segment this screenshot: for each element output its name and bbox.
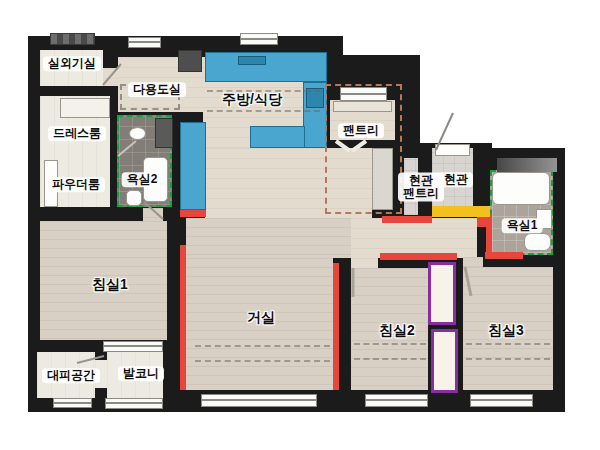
- accent-wall-red: [380, 253, 457, 260]
- floor-guide-line: [354, 343, 426, 345]
- window: [53, 398, 92, 408]
- window: [103, 341, 163, 352]
- shower-unit: [155, 118, 173, 148]
- closet-panel: [431, 329, 458, 393]
- corridor-floor: [351, 218, 477, 258]
- room-label-outdoor-unit: 실외기실: [43, 56, 101, 71]
- room-label-pantry: 팬트리: [338, 123, 384, 138]
- window: [365, 394, 428, 407]
- room-floor-living-upper: [186, 218, 351, 258]
- built-in-closet: [497, 158, 557, 172]
- room-label-bathroom1: 욕실1: [502, 218, 543, 233]
- floor-guide-line: [466, 358, 550, 360]
- entry-pantry-line1: 현관: [409, 173, 433, 187]
- bedroom3-door-opening: [463, 257, 483, 267]
- cooktop: [238, 56, 266, 65]
- outdoor-unit-door-opening: [103, 68, 118, 86]
- window: [470, 394, 533, 407]
- room-label-bedroom3: 침실3: [488, 323, 524, 339]
- room-label-entry: 현관: [439, 172, 473, 187]
- kitchen-island-counter: [250, 126, 305, 148]
- room-label-dress: 드레스룸: [48, 126, 106, 141]
- accent-wall-red: [382, 216, 432, 223]
- room-label-bedroom1: 침실1: [92, 277, 128, 293]
- closet-panel: [428, 262, 456, 325]
- vent-louver: [50, 33, 95, 45]
- room-label-powder: 파우더룸: [47, 177, 105, 192]
- floor-plan: 실외기실 다용도실 주방/식당 드레스룸 파우더룸 욕실2 팬트리 현관 팬트리…: [0, 0, 600, 450]
- accent-wall-red: [180, 245, 186, 390]
- sink: [129, 127, 146, 140]
- entry-pantry-line2: 팬트리: [403, 186, 439, 200]
- window: [128, 37, 161, 48]
- floor-guide-line: [207, 110, 320, 112]
- floor-guide-line: [195, 360, 330, 362]
- refrigerator: [180, 122, 206, 210]
- window: [105, 398, 163, 409]
- washer: [178, 50, 202, 72]
- kitchen-counter: [205, 52, 327, 82]
- room-label-bathroom2: 욕실2: [122, 172, 163, 187]
- entrance-door: [435, 144, 470, 156]
- room-label-balcony: 발코니: [118, 366, 164, 381]
- pantry-dashed-zone: [325, 84, 402, 214]
- room-label-living: 거실: [247, 310, 275, 326]
- toilet: [126, 190, 142, 206]
- room-label-entry-pantry: 현관 팬트리: [398, 173, 444, 202]
- bedroom1-door-opening: [143, 208, 163, 221]
- window: [240, 33, 278, 45]
- bedroom2-door-opening: [351, 258, 378, 268]
- floor-guide-line: [195, 345, 330, 347]
- dress-room-closet: [60, 98, 110, 118]
- accent-wall-red: [180, 210, 206, 217]
- bathtub: [492, 172, 550, 205]
- room-label-kitchen: 주방/식당: [222, 92, 282, 108]
- room-label-bedroom2: 침실2: [379, 323, 415, 339]
- accent-wall-red: [333, 263, 339, 390]
- toilet: [524, 233, 551, 251]
- room-label-refuge: 대피공간: [42, 368, 100, 383]
- floor-guide-line: [466, 343, 550, 345]
- room-label-utility: 다용도실: [128, 82, 186, 97]
- floor-guide-line: [354, 358, 426, 360]
- window: [201, 394, 317, 407]
- entrance-threshold: [432, 206, 490, 217]
